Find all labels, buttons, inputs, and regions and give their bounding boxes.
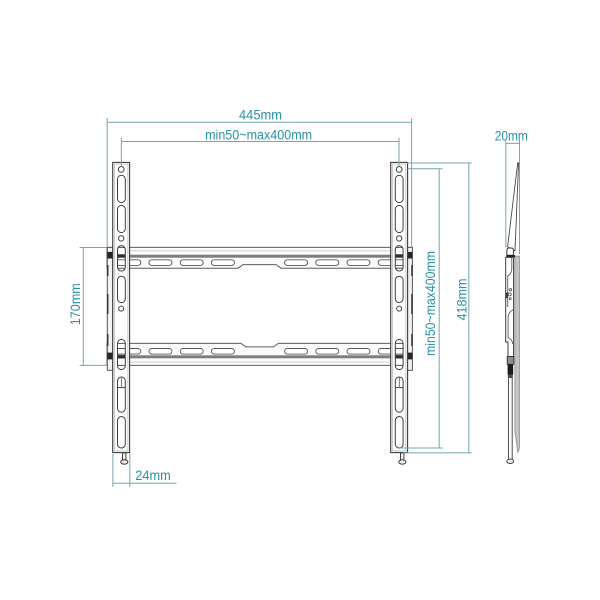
svg-text:418mm: 418mm (455, 279, 470, 321)
svg-text:min50~max400mm: min50~max400mm (205, 127, 312, 142)
svg-text:24mm: 24mm (135, 468, 171, 483)
svg-text:20mm: 20mm (495, 129, 528, 144)
svg-text:min50~max400mm: min50~max400mm (423, 251, 438, 356)
svg-text:445mm: 445mm (239, 107, 282, 122)
svg-text:170mm: 170mm (68, 283, 83, 325)
